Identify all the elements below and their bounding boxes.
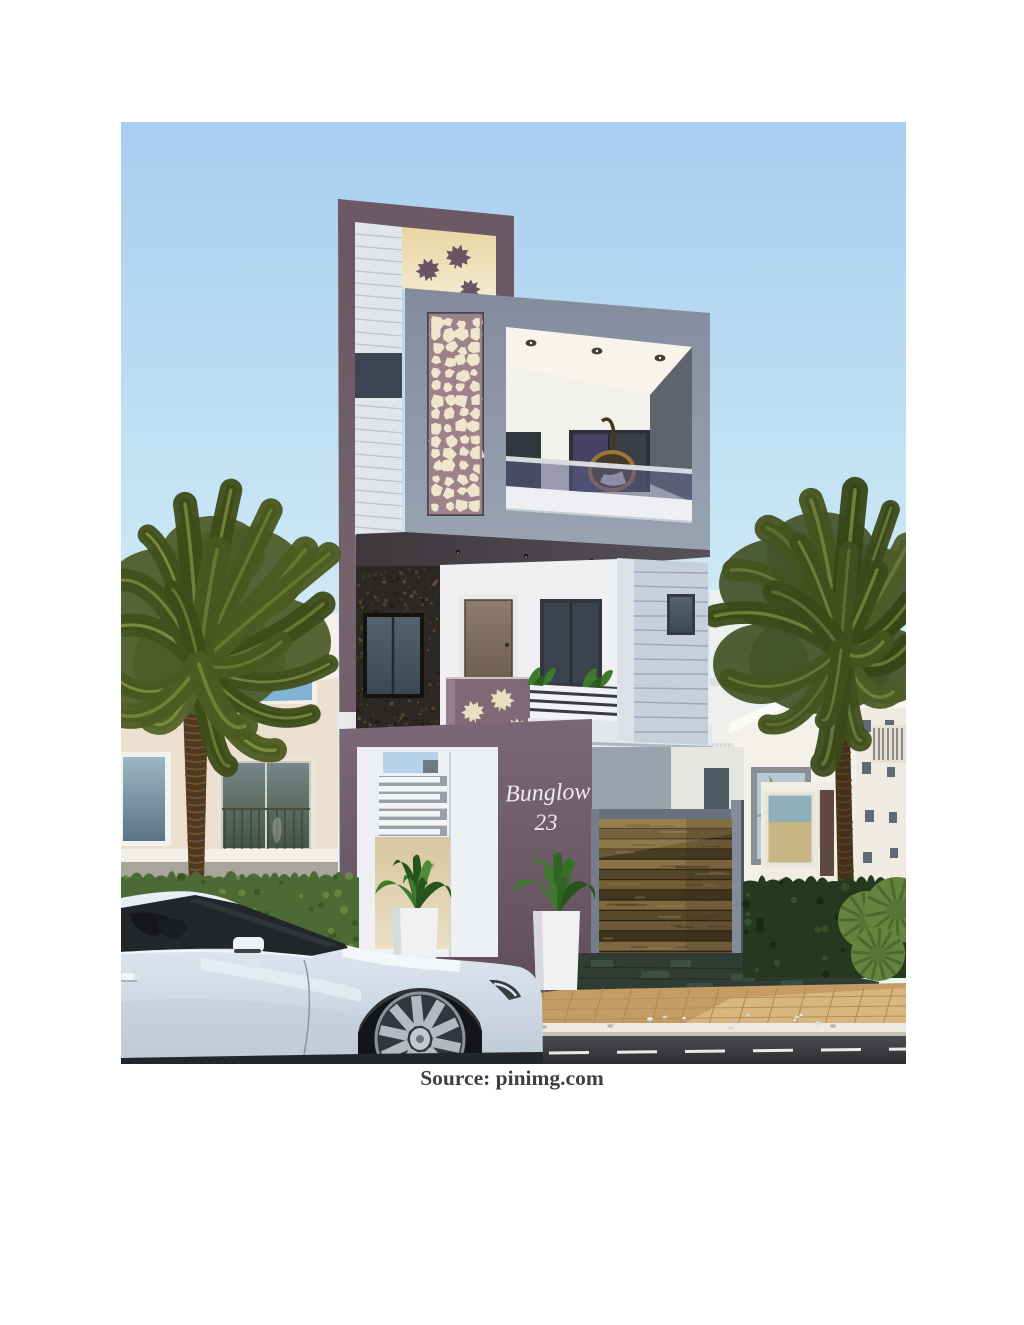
- svg-text:23: 23: [535, 810, 558, 835]
- svg-text:Bunglow: Bunglow: [505, 779, 591, 808]
